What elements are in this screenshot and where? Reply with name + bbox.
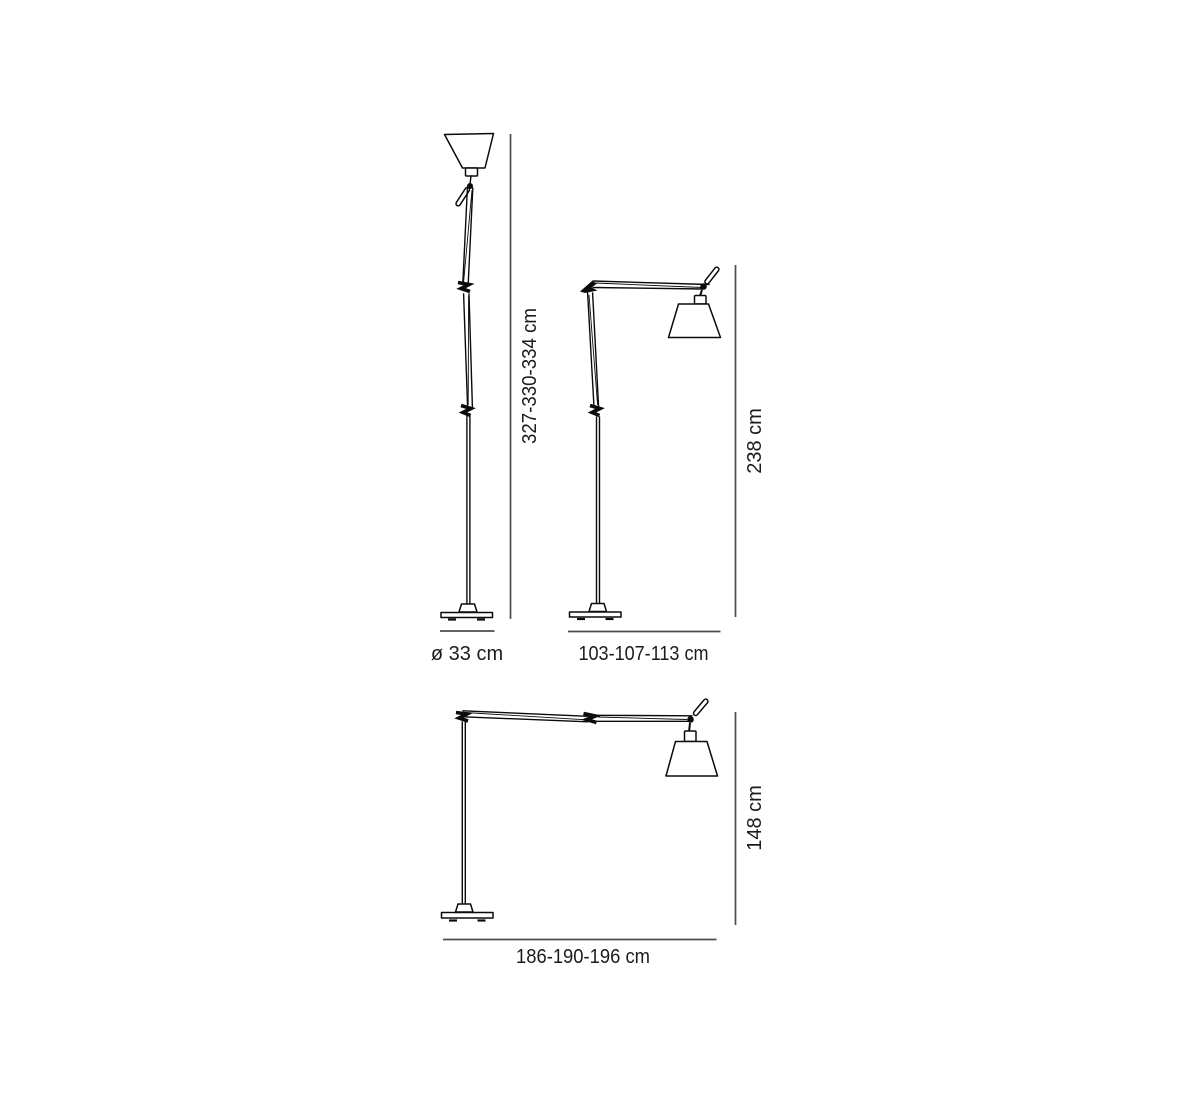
width-dimension-label-mid: 103-107-113 cm — [579, 643, 709, 665]
lamp-pole-foot — [456, 904, 474, 912]
lamp-stem — [470, 176, 471, 184]
width-dimension-label-upright: ø 33 cm — [431, 643, 503, 665]
lamp-pole-foot — [459, 604, 477, 612]
height-dimension-label-mid: 238 cm — [744, 408, 766, 474]
lamp-shade-neck — [685, 731, 697, 742]
diagram-canvas: 327-330-334 cm ø 33 cm — [0, 0, 1200, 1100]
lamp-pole-foot — [589, 604, 607, 612]
height-dimension-label-full: 148 cm — [744, 785, 766, 851]
width-dimension-label-full: 186-190-196 cm — [516, 946, 650, 968]
lamp-shade-neck — [466, 168, 478, 176]
lamp-shade-neck — [695, 296, 707, 305]
diagram-stage: 327-330-334 cm ø 33 cm — [0, 0, 1200, 1100]
height-dimension-label-upright: 327-330-334 cm — [519, 308, 541, 444]
lamp-head-joint-dot — [687, 716, 694, 723]
